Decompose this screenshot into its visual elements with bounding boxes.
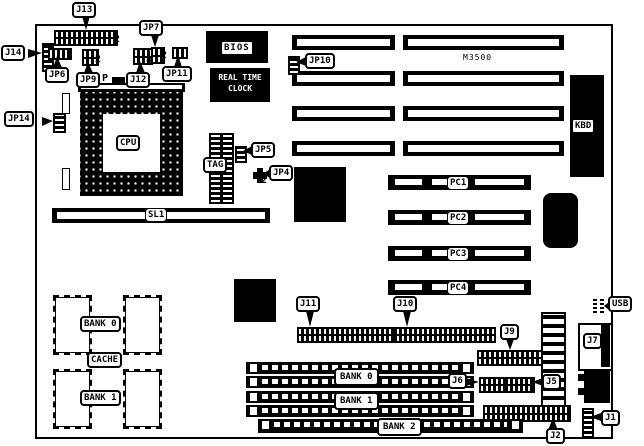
j1-header [582, 408, 594, 438]
sl1-label: SL1 [145, 208, 167, 222]
pci-key [475, 179, 524, 185]
pc4-label: PC4 [447, 281, 469, 295]
m3500-text: M3500 [463, 53, 492, 63]
pci-key [432, 179, 447, 185]
j13-pin-number: 2 [114, 35, 120, 45]
j5-small-header [506, 377, 535, 393]
pci-key [395, 179, 422, 185]
cpu-label: CPU [116, 135, 140, 151]
motherboard-diagram: BIOS REAL TIME CLOCK M3500 KBD SL1 PC1 P… [0, 0, 644, 446]
jp7-pin-number: 2 [161, 51, 167, 61]
jp9-label: JP9 [76, 72, 100, 88]
isa-slot-2-right [403, 71, 564, 86]
jp6-label: JP6 [45, 67, 69, 83]
pc3-label: PC3 [447, 247, 469, 261]
usb-header [590, 299, 605, 315]
simm-bank1-label: BANK 1 [334, 392, 379, 410]
j1-label: J1 [601, 410, 620, 426]
isa-slot-3-right [403, 106, 564, 121]
j7-label: J7 [583, 333, 602, 349]
chipset-qfp-2 [543, 193, 578, 248]
cache-label: CACHE [87, 352, 122, 368]
pc2-label: PC2 [447, 211, 469, 225]
socket-clip [62, 93, 70, 114]
pci-key [475, 214, 524, 220]
jp10-label: JP10 [305, 53, 335, 69]
simm-bank0-label: BANK 0 [334, 368, 379, 386]
isa-slot-1-left [292, 35, 395, 50]
jp14-label: JP14 [4, 111, 34, 127]
jp14-jumper [53, 113, 66, 133]
jp4-label: JP4 [269, 165, 293, 181]
pci-key [475, 284, 524, 290]
pci-key [395, 214, 422, 220]
kbd-label: KBD [572, 119, 594, 133]
simm-bank2-label: BANK 2 [377, 418, 422, 436]
tag-label: TAG [203, 157, 227, 173]
isa-slot-1-right [403, 35, 564, 50]
chip-square [234, 279, 276, 322]
j13-header [54, 30, 118, 46]
pci-key [432, 284, 447, 290]
ps2-connector [584, 369, 610, 403]
chipset-qfp-1 [294, 167, 346, 222]
isa-slot-3-left [292, 106, 395, 121]
jp9-pin-number: 2 [95, 55, 101, 65]
jp6-header [48, 48, 72, 60]
jp11-label: JP11 [162, 66, 192, 82]
bios-label: BIOS [221, 41, 253, 55]
jp5-label: JP5 [251, 142, 275, 158]
jp11-header [172, 47, 188, 59]
isa-slot-2-left [292, 71, 395, 86]
socket-clip [62, 168, 70, 190]
rtc-label-line2: CLOCK [210, 83, 270, 94]
j11-header [297, 327, 396, 343]
p-marker: P [102, 74, 108, 84]
pc1-label: PC1 [447, 176, 469, 190]
pci-key [395, 284, 422, 290]
j9-label: J9 [500, 324, 519, 340]
j6-header [479, 377, 508, 393]
pci-key [432, 214, 447, 220]
pci-key [395, 250, 422, 256]
j12-pin-number: 4 [146, 56, 152, 66]
cache-bank0-label: BANK 0 [80, 316, 121, 332]
j6-label: J6 [448, 373, 467, 389]
ps2-connector-tab [578, 374, 584, 381]
jp7-label: JP7 [139, 20, 163, 36]
jp5-jumper [235, 146, 247, 163]
j13-label: J13 [72, 2, 96, 18]
cache-bank1-label: BANK 1 [80, 390, 121, 406]
jp10-jumper [288, 56, 300, 75]
ps2-connector-tab [578, 388, 584, 395]
j5-connector [541, 312, 566, 407]
j10-label: J10 [393, 296, 417, 312]
j5-label: J5 [542, 374, 561, 390]
j12-label: J12 [126, 72, 150, 88]
j11-label: J11 [296, 296, 320, 312]
j7-connector-port [601, 325, 610, 367]
usb-label: USB [608, 296, 632, 312]
isa-slot-4-left [292, 141, 395, 156]
cache-chip [123, 295, 162, 355]
j10-header [395, 327, 496, 343]
pci-key [475, 250, 524, 256]
j2-label: J2 [546, 428, 565, 444]
cache-chip [123, 369, 162, 429]
j9-header [477, 350, 543, 366]
rtc-label-line1: REAL TIME [210, 72, 270, 83]
pci-key [432, 250, 447, 256]
jp4-pin-number: 2 [261, 176, 267, 186]
isa-slot-4-right [403, 141, 564, 156]
rtc-chip: REAL TIME CLOCK [210, 68, 270, 102]
j14-label: J14 [1, 45, 25, 61]
